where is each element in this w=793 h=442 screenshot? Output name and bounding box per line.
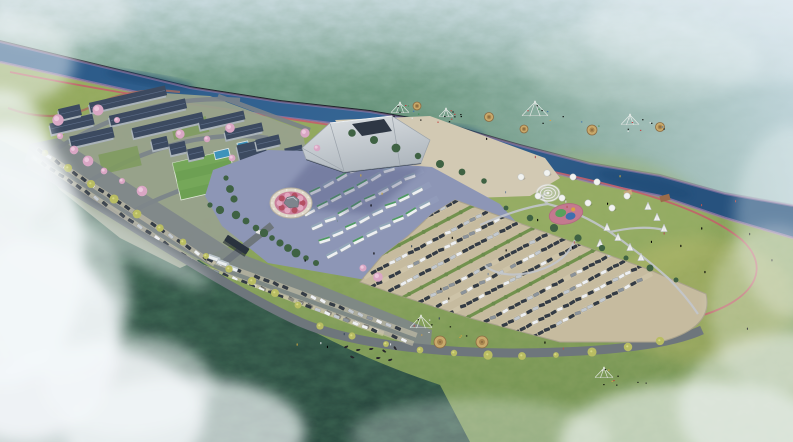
mandala-dot — [302, 213, 304, 215]
visitor-figure — [574, 241, 575, 243]
prayer-flag — [459, 337, 460, 338]
visitor-figure — [735, 200, 736, 202]
evergreen-tree — [216, 206, 224, 214]
blossom-highlight — [230, 156, 233, 159]
mandala-petal — [279, 195, 285, 201]
evergreen-tree — [230, 195, 237, 202]
prayer-flag — [444, 116, 445, 117]
prayer-flag — [645, 383, 646, 384]
evergreen-tree — [232, 211, 240, 219]
visitor-figure — [390, 343, 391, 345]
tree-highlight — [89, 182, 91, 184]
prayer-flag — [663, 129, 664, 130]
prayer-flag — [598, 126, 599, 127]
hedge-bush — [434, 223, 438, 227]
evergreen-tree — [207, 202, 212, 207]
visitor-figure — [439, 317, 440, 319]
hedge-bush — [566, 262, 570, 266]
visitor-figure — [373, 252, 374, 254]
prayer-flag — [632, 122, 633, 123]
blossom-highlight — [227, 125, 231, 129]
tree-highlight — [520, 354, 522, 356]
prayer-flag — [466, 335, 467, 336]
hedge-bush — [422, 230, 426, 234]
mandala-dot — [307, 208, 309, 210]
visitor-figure — [544, 341, 545, 343]
prayer-flag — [437, 122, 438, 123]
prayer-flag — [418, 319, 419, 320]
hedge-bush — [459, 210, 463, 214]
thatched-hut — [587, 125, 597, 135]
prayer-flag — [563, 116, 564, 117]
hedge-bush — [469, 259, 473, 263]
blossom-highlight — [94, 106, 99, 111]
evergreen-tree — [243, 218, 250, 225]
hedge-bush — [432, 279, 436, 283]
prayer-flag — [418, 114, 419, 115]
blossom-highlight — [302, 130, 306, 134]
hedge-bush — [407, 292, 411, 296]
evergreen-tree — [415, 153, 421, 159]
prayer-flag — [460, 114, 461, 115]
hedge-bush — [506, 239, 510, 243]
tree-highlight — [590, 350, 592, 352]
visitor-figure — [411, 245, 412, 247]
blossom-highlight — [115, 118, 118, 121]
prayer-flag — [662, 126, 663, 127]
mandala-dot — [294, 215, 296, 217]
evergreen-tree — [623, 255, 628, 260]
tree-highlight — [158, 226, 160, 228]
hedge-bush — [446, 217, 450, 221]
visitor-figure — [448, 298, 449, 300]
visitor-figure — [701, 227, 702, 229]
blossom-highlight — [205, 137, 208, 140]
hedge-bush — [491, 302, 495, 306]
visitor-figure — [337, 220, 338, 222]
evergreen-tree — [223, 175, 228, 180]
mandala-dot — [278, 213, 280, 215]
blossom-highlight — [375, 274, 379, 278]
visitor-figure — [452, 237, 453, 239]
prayer-flag — [649, 122, 650, 123]
visitor-figure — [537, 219, 538, 221]
tree-highlight — [452, 351, 454, 353]
hedge-bush — [553, 269, 557, 273]
prayer-flag — [413, 111, 414, 112]
prayer-flag — [616, 385, 617, 386]
hedge-bush — [444, 272, 448, 276]
prayer-flag — [399, 112, 400, 113]
mandala-dot — [271, 202, 273, 204]
prayer-flag — [421, 335, 422, 336]
prayer-flag — [627, 131, 628, 132]
prayer-flag — [429, 320, 430, 321]
mandala-dot — [302, 192, 304, 194]
visitor-figure — [664, 232, 665, 234]
mandala-dot — [294, 189, 296, 191]
tree-highlight — [66, 166, 68, 168]
tree-highlight — [250, 279, 252, 281]
prayer-flag — [428, 332, 429, 333]
visitor-figure — [488, 273, 489, 275]
thatched-hut — [520, 125, 528, 133]
prayer-flag — [408, 105, 409, 106]
prayer-flag — [405, 105, 406, 106]
prayer-flag — [640, 130, 641, 131]
evergreen-tree — [459, 169, 466, 176]
prayer-flag — [628, 129, 629, 130]
visitor-figure — [305, 260, 306, 262]
mandala-dot — [309, 202, 311, 204]
visitor-figure — [440, 288, 441, 290]
evergreen-tree — [276, 239, 283, 246]
dome-tent — [624, 193, 630, 199]
evergreen-tree — [292, 249, 301, 258]
evergreen-tree — [481, 178, 487, 184]
visitor-figure — [486, 138, 487, 140]
visitor-figure — [607, 203, 608, 205]
evergreen-tree — [260, 229, 268, 237]
dome-tent — [535, 193, 541, 199]
prayer-flag — [538, 109, 539, 110]
tree-highlight — [418, 348, 420, 350]
evergreen-tree — [370, 136, 378, 144]
prayer-flag — [617, 376, 618, 377]
prayer-flag — [613, 380, 614, 381]
tree-highlight — [350, 334, 352, 336]
prayer-flag — [547, 111, 548, 112]
evergreen-tree — [574, 234, 581, 241]
flower-mandala — [270, 188, 312, 218]
prayer-flag — [605, 369, 606, 370]
tree-highlight — [318, 324, 320, 326]
scene-canvas — [0, 0, 793, 442]
thatched-hut — [485, 113, 494, 122]
cone-finial — [603, 367, 605, 369]
mandala-dot — [286, 189, 288, 191]
visitor-figure — [620, 175, 621, 177]
visitor-figure — [320, 342, 321, 344]
evergreen-tree — [674, 278, 679, 283]
prayer-flag — [431, 324, 432, 325]
cone-finial — [399, 102, 401, 104]
prayer-flag — [581, 121, 582, 122]
prayer-flag — [402, 107, 403, 108]
prayer-flag — [550, 120, 551, 121]
blossom-highlight — [361, 266, 364, 269]
hedge-bush — [457, 266, 461, 270]
prayer-flag — [450, 110, 451, 111]
evergreen-tree — [527, 215, 533, 221]
visitor-figure — [535, 156, 536, 158]
thatched-hut — [434, 336, 446, 348]
thatched-hut — [413, 102, 421, 110]
dome-tent — [544, 170, 550, 176]
evergreen-tree — [348, 129, 356, 137]
tree-highlight — [554, 353, 556, 355]
prayer-flag — [451, 119, 452, 120]
evergreen-tree — [550, 224, 558, 232]
prayer-flag — [651, 123, 652, 124]
hedge-bush — [479, 308, 483, 312]
hedge-bush — [409, 237, 413, 241]
prayer-flag — [637, 382, 638, 383]
dome-tent — [609, 205, 615, 211]
dome-tent — [594, 179, 600, 185]
mandala-dot — [286, 215, 288, 217]
hedge-bush — [578, 256, 582, 260]
prayer-flag — [628, 118, 629, 119]
blossom-highlight — [58, 134, 61, 137]
aerial-masterplan-rendering — [0, 0, 793, 442]
blossom-highlight — [102, 169, 105, 172]
visitor-figure — [382, 193, 383, 195]
prayer-flag — [461, 335, 462, 336]
prayer-flag — [414, 325, 415, 326]
hedge-bush — [529, 282, 533, 286]
tree-highlight — [135, 212, 137, 214]
blossom-highlight — [54, 116, 59, 121]
prayer-flag — [450, 326, 451, 327]
mandala-petal — [284, 207, 290, 213]
evergreen-tree — [392, 144, 401, 153]
tree-highlight — [384, 342, 386, 344]
prayer-flag — [461, 116, 462, 117]
blossom-highlight — [177, 131, 181, 135]
tree-highlight — [227, 267, 229, 269]
prayer-flag — [611, 381, 612, 382]
cone-finial — [445, 108, 447, 110]
visitor-figure — [565, 200, 566, 202]
blossom-highlight — [138, 187, 143, 192]
blossom-highlight — [84, 157, 89, 162]
evergreen-tree — [284, 244, 292, 252]
tree-highlight — [204, 254, 206, 256]
prayer-flag — [527, 110, 528, 111]
visitor-figure — [344, 333, 345, 335]
mandala-petal — [292, 207, 298, 213]
prayer-flag — [602, 370, 603, 371]
prayer-flag — [603, 384, 604, 385]
prayer-flag — [393, 116, 394, 117]
blossom-highlight — [120, 179, 123, 182]
visitor-figure — [327, 346, 328, 348]
cone-finial — [534, 101, 536, 103]
visitor-figure — [297, 343, 298, 345]
dome-tent — [570, 174, 576, 180]
cone-finial — [629, 114, 631, 116]
tree-highlight — [296, 303, 298, 305]
evergreen-tree — [226, 185, 234, 193]
prayer-flag — [412, 118, 413, 119]
visitor-figure — [651, 241, 652, 243]
visitor-figure — [704, 271, 705, 273]
dome-tent — [518, 174, 524, 180]
hedge-bush — [504, 295, 508, 299]
tree-highlight — [658, 339, 660, 341]
prayer-flag — [397, 106, 398, 107]
tree-highlight — [273, 291, 275, 293]
visitor-figure — [506, 249, 507, 251]
blossom-highlight — [71, 147, 75, 151]
dome-tent — [585, 200, 591, 206]
evergreen-tree — [303, 255, 309, 261]
evergreen-tree — [253, 225, 260, 232]
visitor-figure — [371, 204, 372, 206]
thatched-hut — [476, 336, 488, 348]
visitor-figure — [360, 174, 361, 176]
blossom-highlight — [315, 146, 318, 149]
tree-highlight — [626, 345, 628, 347]
evergreen-tree — [269, 235, 275, 241]
prayer-flag — [449, 121, 450, 122]
hedge-bush — [516, 288, 520, 292]
visitor-figure — [505, 191, 506, 193]
mandala-dot — [278, 192, 280, 194]
hedge-bush — [481, 253, 485, 257]
mandala-dot — [273, 208, 275, 210]
evergreen-tree — [599, 245, 605, 251]
hedge-bush — [541, 275, 545, 279]
evergreen-tree — [647, 265, 654, 272]
visitor-figure — [701, 204, 702, 206]
visitor-figure — [680, 245, 681, 247]
hedge-bush — [494, 246, 498, 250]
hedge-bush — [419, 285, 423, 289]
prayer-flag — [541, 110, 542, 111]
evergreen-tree — [504, 206, 509, 211]
tree-highlight — [486, 353, 488, 355]
evergreen-tree — [313, 260, 319, 266]
prayer-flag — [452, 112, 453, 113]
mandala-dot — [273, 196, 275, 198]
prayer-flag — [420, 120, 421, 121]
prayer-flag — [536, 105, 537, 106]
tree-highlight — [181, 240, 183, 242]
mandala-dot — [307, 196, 309, 198]
dome-tent — [559, 195, 565, 201]
prayer-flag — [454, 116, 455, 117]
prayer-flag — [608, 370, 609, 371]
prayer-flag — [542, 123, 543, 124]
hedge-bush — [518, 233, 522, 237]
visitor-figure — [563, 348, 564, 350]
prayer-flag — [454, 114, 455, 115]
cone-finial — [420, 315, 422, 317]
evergreen-tree — [436, 160, 444, 168]
visitor-figure — [567, 206, 568, 208]
tree-highlight — [112, 197, 114, 199]
visitor-figure — [572, 246, 573, 248]
prayer-flag — [642, 119, 643, 120]
